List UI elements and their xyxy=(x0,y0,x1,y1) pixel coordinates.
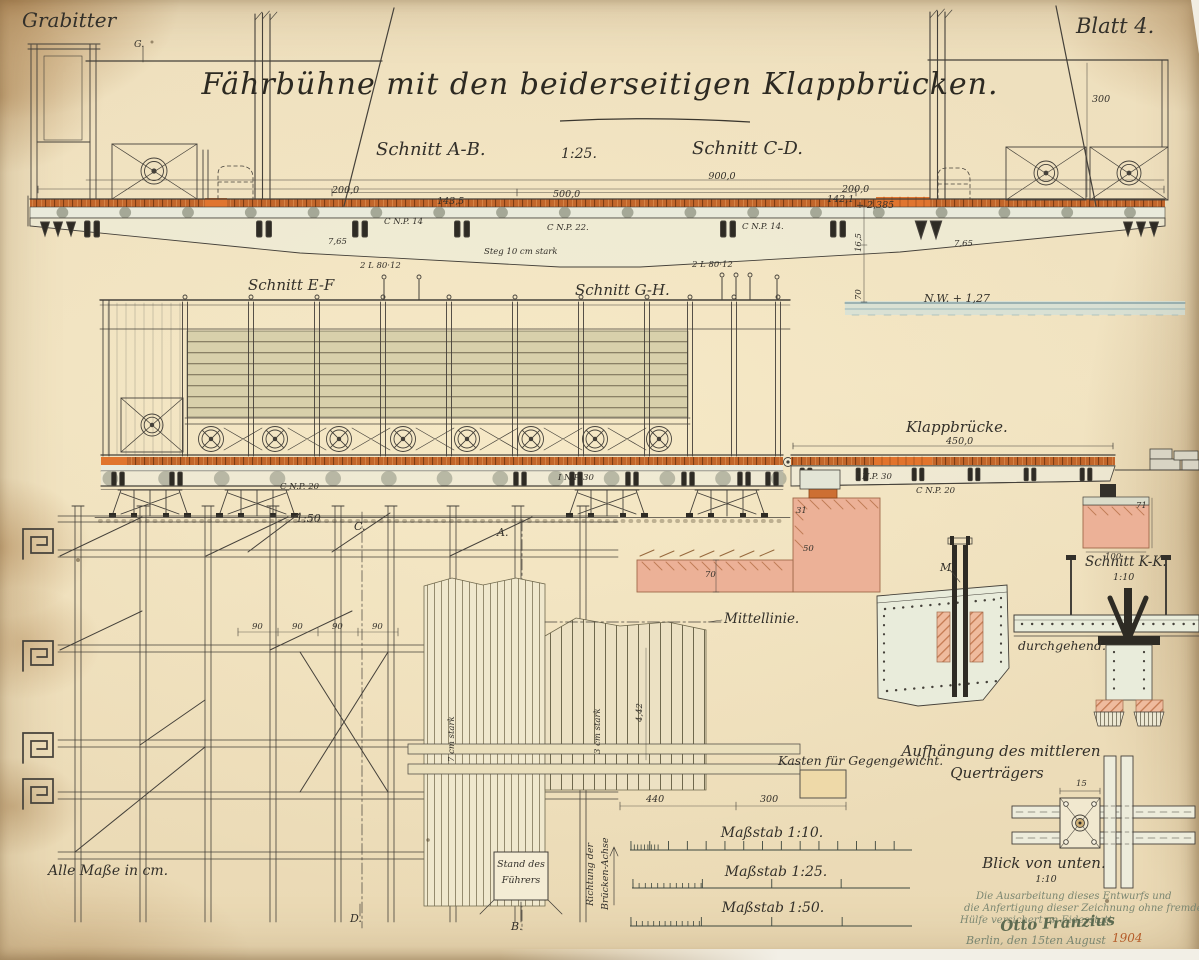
scanned-drawing-photo: GrabitterBlatt 4.Fährbühne mit den beide… xyxy=(0,0,1199,960)
detail-schnitt-kk xyxy=(1014,555,1199,726)
detail-blick-von-unten xyxy=(1012,756,1195,888)
backing-paper-bottom xyxy=(499,949,1199,960)
plan-belag xyxy=(360,578,846,920)
drawing-linework xyxy=(0,0,1199,960)
title-underline xyxy=(560,119,750,122)
elevation-schnitt-ef-gh xyxy=(95,273,1199,592)
elevation-schnitt-ab-cd xyxy=(28,6,1185,315)
scale-bars xyxy=(630,846,912,927)
detail-m xyxy=(877,536,1009,706)
